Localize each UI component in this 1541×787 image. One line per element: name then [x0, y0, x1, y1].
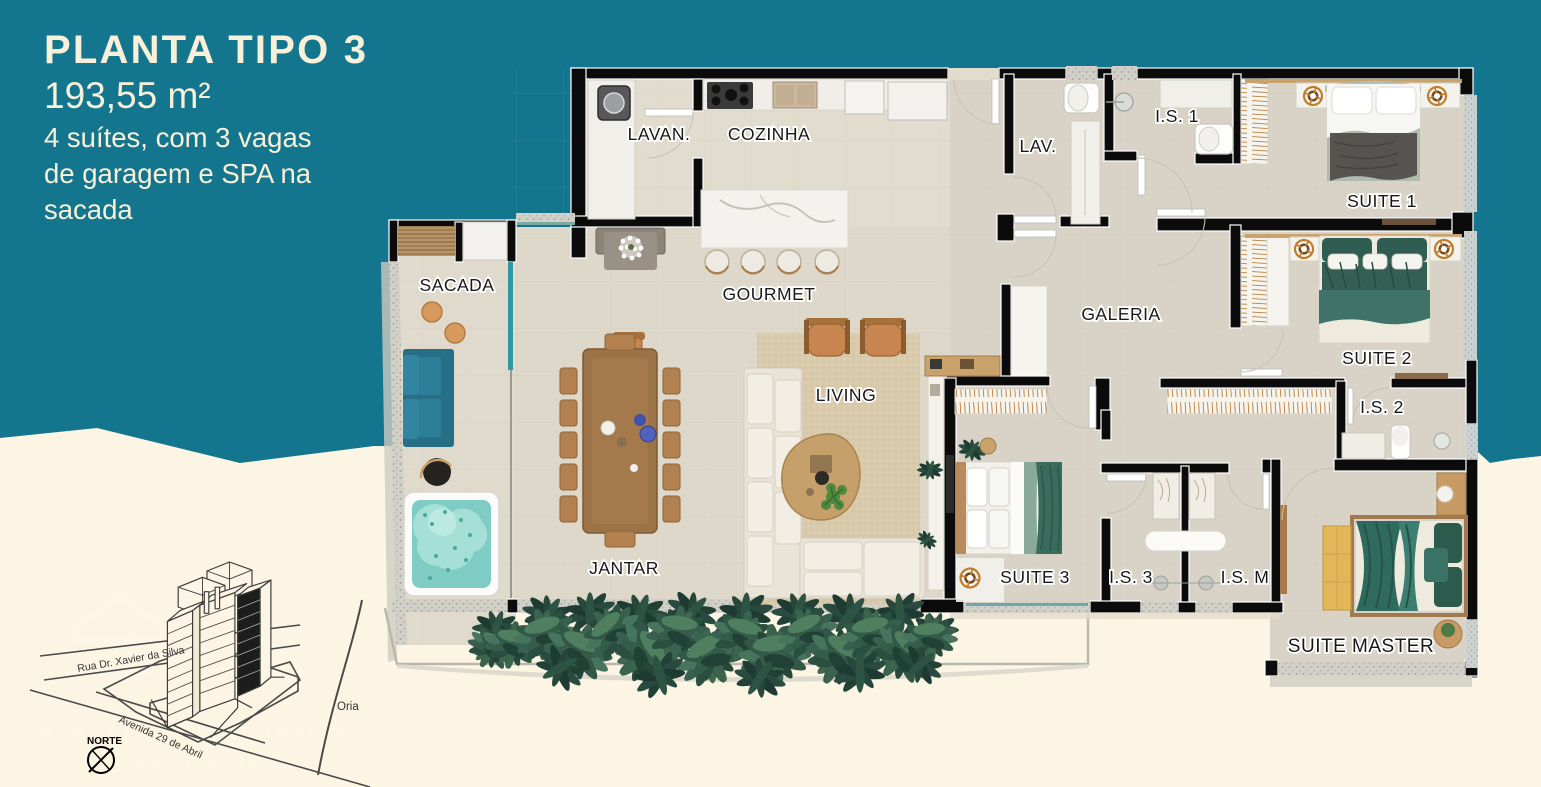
svg-text:JANTAR: JANTAR	[589, 558, 659, 578]
svg-text:GALERIA: GALERIA	[1081, 304, 1160, 324]
svg-text:GOURMET: GOURMET	[723, 284, 816, 304]
svg-text:Oria: Oria	[337, 701, 359, 713]
svg-text:NORTE: NORTE	[87, 736, 122, 747]
svg-text:I.S. 3: I.S. 3	[1109, 567, 1153, 587]
svg-text:193,55 m²: 193,55 m²	[44, 75, 211, 116]
svg-text:SUITE 1: SUITE 1	[1347, 191, 1417, 211]
svg-text:sacada: sacada	[44, 194, 133, 225]
svg-text:SACADA: SACADA	[420, 275, 495, 295]
svg-text:I.S. 2: I.S. 2	[1360, 397, 1404, 417]
svg-text:SUITE 3: SUITE 3	[1000, 567, 1070, 587]
svg-text:LIVING: LIVING	[816, 385, 876, 405]
svg-text:SUITE 2: SUITE 2	[1342, 348, 1412, 368]
svg-text:SUITE MASTER: SUITE MASTER	[1288, 636, 1434, 657]
svg-text:PLANTA TIPO 3: PLANTA TIPO 3	[44, 28, 368, 72]
svg-text:COZINHA: COZINHA	[728, 124, 810, 144]
svg-text:I.S. M: I.S. M	[1221, 567, 1270, 587]
svg-text:LAV.: LAV.	[1019, 136, 1056, 156]
svg-text:LAVAN.: LAVAN.	[628, 124, 691, 144]
svg-text:I.S. 1: I.S. 1	[1155, 106, 1199, 126]
svg-text:de garagem e SPA na: de garagem e SPA na	[44, 158, 312, 189]
svg-text:4 suítes, com 3 vagas: 4 suítes, com 3 vagas	[44, 122, 312, 153]
